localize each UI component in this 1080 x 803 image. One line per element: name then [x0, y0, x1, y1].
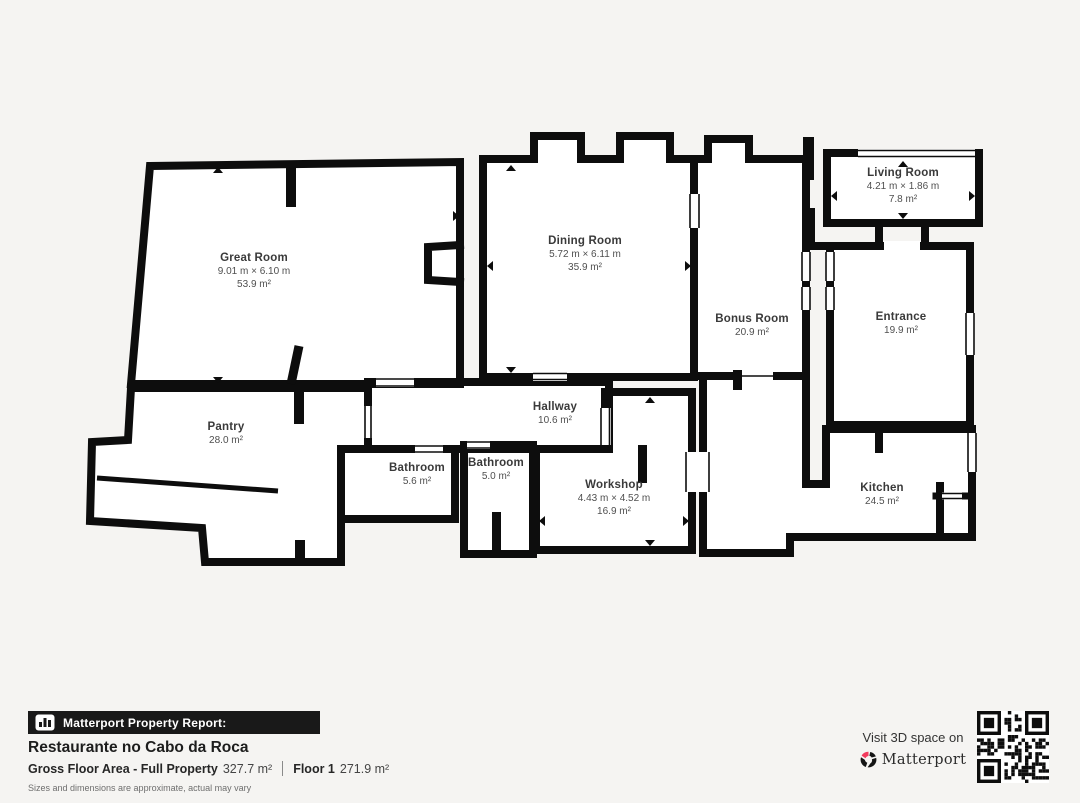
- room-name: Great Room: [218, 251, 291, 265]
- room-label-entrance: Entrance 19.9 m²: [876, 310, 927, 337]
- matterport-pinwheel-icon: [860, 751, 877, 768]
- room-name: Bonus Room: [715, 312, 789, 326]
- room-name: Kitchen: [860, 481, 904, 495]
- room-area: 20.9 m²: [715, 326, 789, 339]
- room-area: 19.9 m²: [876, 324, 927, 337]
- room-area: 53.9 m²: [218, 278, 291, 291]
- room-area: 24.5 m²: [860, 495, 904, 508]
- room-area: 10.6 m²: [533, 414, 577, 427]
- room-label-bathroom-1: Bathroom 5.6 m²: [389, 461, 445, 488]
- gross-floor-area-value: 327.7 m²: [223, 762, 272, 776]
- visit-3d-text: Visit 3D space on: [858, 730, 968, 745]
- disclaimer-text: Sizes and dimensions are approximate, ac…: [28, 783, 251, 793]
- divider: [282, 761, 283, 776]
- room-label-living-room: Living Room 4.21 m × 1.86 m 7.8 m²: [867, 166, 940, 206]
- room-dims: 4.21 m × 1.86 m: [867, 180, 940, 193]
- room-area: 28.0 m²: [208, 434, 245, 447]
- floor-value: 271.9 m²: [340, 762, 389, 776]
- room-name: Dining Room: [548, 234, 622, 248]
- room-label-pantry: Pantry 28.0 m²: [208, 420, 245, 447]
- room-area: 7.8 m²: [867, 193, 940, 206]
- room-area: 5.6 m²: [389, 475, 445, 488]
- matterport-wordmark: Matterport: [882, 752, 966, 768]
- room-name: Living Room: [867, 166, 940, 180]
- building-icon: [35, 714, 55, 731]
- room-label-workshop: Workshop 4.43 m × 4.52 m 16.9 m²: [578, 478, 651, 518]
- gross-floor-area-label: Gross Floor Area - Full Property: [28, 762, 218, 776]
- room-label-bonus-room: Bonus Room 20.9 m²: [715, 312, 789, 339]
- property-name: Restaurante no Cabo da Roca: [28, 739, 249, 757]
- qr-code: [977, 711, 1049, 783]
- area-summary: Gross Floor Area - Full Property 327.7 m…: [28, 761, 389, 776]
- room-name: Entrance: [876, 310, 927, 324]
- room-area: 5.0 m²: [468, 470, 524, 483]
- room-name: Workshop: [578, 478, 651, 492]
- visit-3d-cta: Visit 3D space on Matterport: [858, 730, 968, 768]
- room-name: Hallway: [533, 400, 577, 414]
- report-title-bar: Matterport Property Report:: [28, 711, 320, 734]
- matterport-logo: Matterport: [858, 751, 968, 768]
- room-area: 35.9 m²: [548, 261, 622, 274]
- report-bar-label: Matterport Property Report:: [63, 716, 226, 730]
- room-dims: 5.72 m × 6.11 m: [548, 248, 622, 261]
- room-label-hallway: Hallway 10.6 m²: [533, 400, 577, 427]
- room-area: 16.9 m²: [578, 505, 651, 518]
- room-dims: 4.43 m × 4.52 m: [578, 492, 651, 505]
- room-name: Bathroom: [468, 456, 524, 470]
- room-label-dining-room: Dining Room 5.72 m × 6.11 m 35.9 m²: [548, 234, 622, 274]
- room-label-great-room: Great Room 9.01 m × 6.10 m 53.9 m²: [218, 251, 291, 291]
- floor-label: Floor 1: [293, 762, 335, 776]
- room-name: Bathroom: [389, 461, 445, 475]
- room-name: Pantry: [208, 420, 245, 434]
- room-dims: 9.01 m × 6.10 m: [218, 265, 291, 278]
- room-label-bathroom-2: Bathroom 5.0 m²: [468, 456, 524, 483]
- room-label-kitchen: Kitchen 24.5 m²: [860, 481, 904, 508]
